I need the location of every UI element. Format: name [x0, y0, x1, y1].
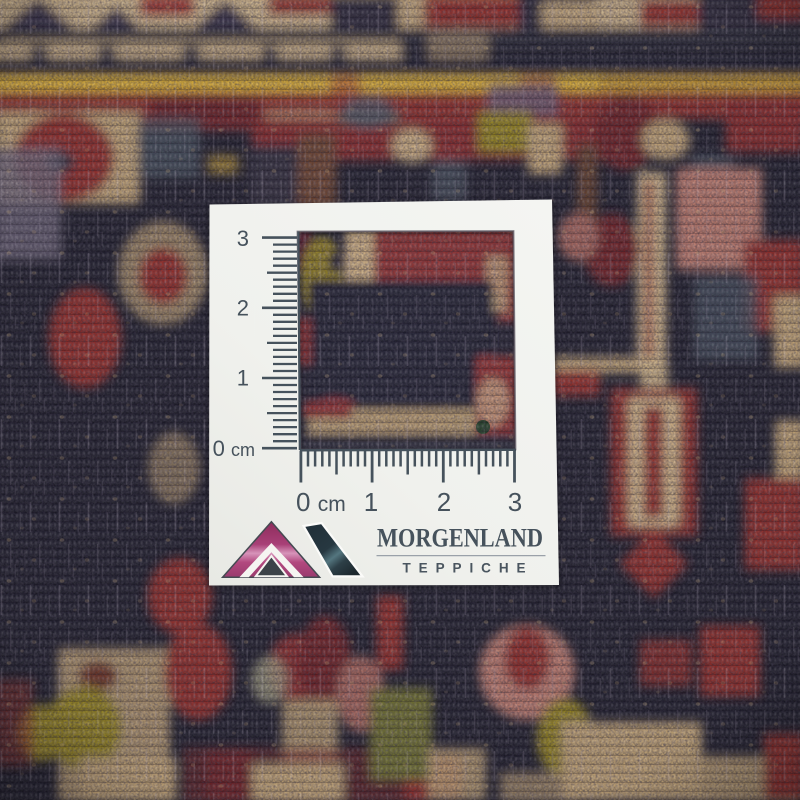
- svg-text:3: 3: [237, 226, 249, 251]
- svg-text:1: 1: [237, 366, 249, 391]
- svg-text:0 cm: 0 cm: [213, 436, 255, 461]
- svg-text:2: 2: [437, 487, 451, 517]
- svg-text:TEPPICHE: TEPPICHE: [403, 561, 532, 576]
- svg-text:2: 2: [237, 295, 249, 320]
- svg-text:3: 3: [508, 487, 522, 517]
- svg-text:1: 1: [364, 487, 378, 517]
- svg-text:MORGENLAND: MORGENLAND: [377, 524, 543, 553]
